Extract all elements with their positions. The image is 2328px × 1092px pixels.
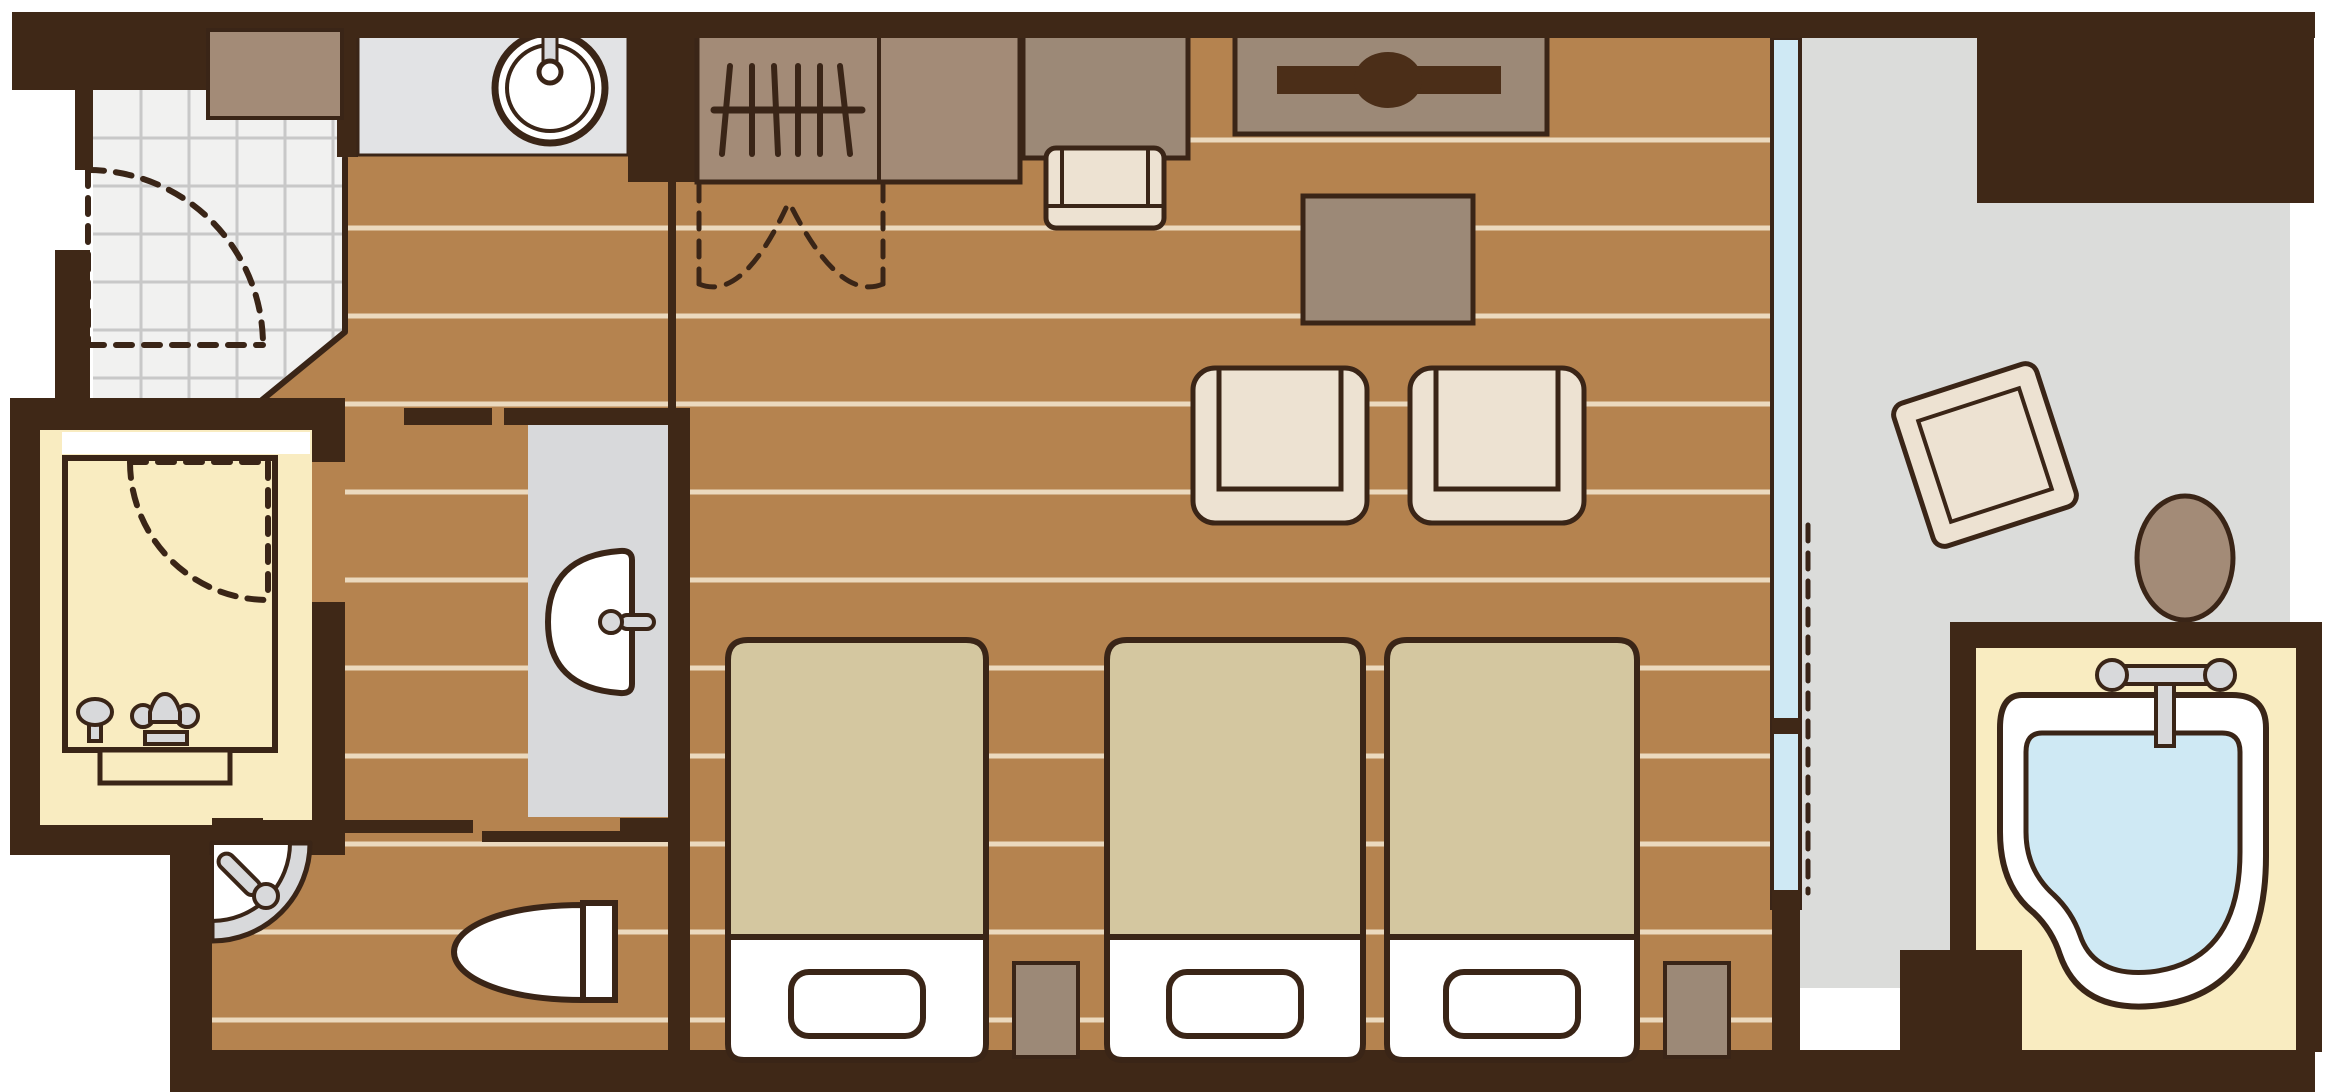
low-table [1303, 196, 1473, 323]
bathroom-door-opening [312, 462, 345, 602]
bathroom-ledge [62, 432, 310, 454]
sliding-door-panel [482, 831, 623, 842]
bathroom [10, 398, 345, 855]
balcony-stool [2137, 496, 2233, 620]
corridor-wall [668, 408, 690, 1058]
pillow [791, 972, 923, 1036]
pillow [1169, 972, 1301, 1036]
shoe-cabinet [208, 30, 342, 118]
bed-1 [728, 640, 986, 1060]
bed-3 [1387, 640, 1637, 1060]
floor-plan [0, 0, 2328, 1092]
sliding-door-panel [263, 820, 473, 833]
partition-line [668, 180, 676, 408]
bed-2 [1107, 640, 1363, 1060]
armchair-2 [1410, 368, 1584, 523]
bed-mattress [728, 640, 986, 937]
vanity-faucet-icon [600, 611, 654, 633]
tv-board [1235, 26, 1547, 134]
entrance-tile-floor [88, 90, 345, 400]
open-air-bath [1900, 622, 2322, 1092]
bed-mattress [1387, 640, 1637, 937]
basin-drain-icon [254, 884, 278, 908]
armchair-1 [1193, 368, 1367, 523]
pillow [1446, 972, 1578, 1036]
window [1772, 38, 1800, 1058]
bed-mattress [1107, 640, 1363, 937]
nightstand-1 [1014, 963, 1078, 1057]
desk [1023, 28, 1188, 228]
bathtub-step [100, 750, 230, 783]
desk-chair [1046, 148, 1164, 228]
nightstand-2 [1665, 963, 1729, 1057]
